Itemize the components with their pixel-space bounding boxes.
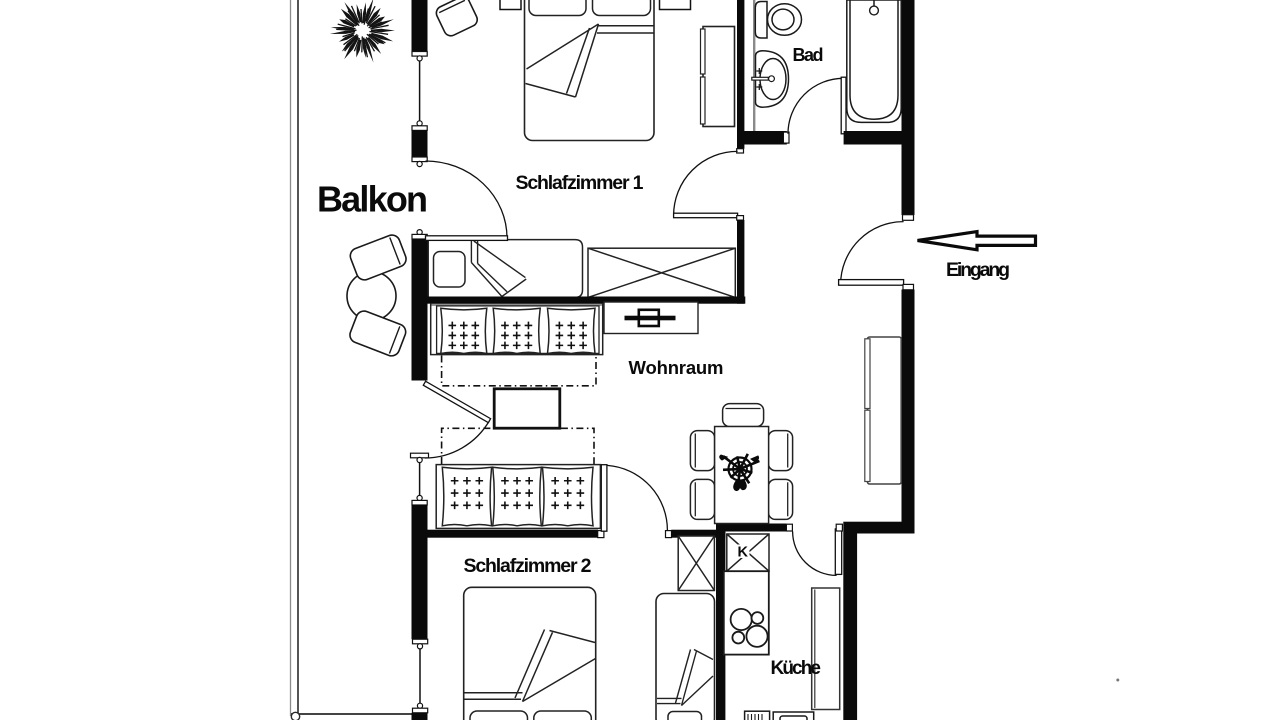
svg-text:Wohnraum: Wohnraum <box>629 357 724 378</box>
svg-text:Schlafzimmer 2: Schlafzimmer 2 <box>464 555 592 577</box>
svg-text:Balkon: Balkon <box>317 179 428 220</box>
svg-text:Eingang: Eingang <box>946 259 1010 281</box>
svg-text:Schlafzimmer 1: Schlafzimmer 1 <box>516 172 644 194</box>
svg-text:K: K <box>738 545 749 561</box>
svg-text:Bad: Bad <box>793 45 824 65</box>
svg-text:Küche: Küche <box>771 658 822 679</box>
